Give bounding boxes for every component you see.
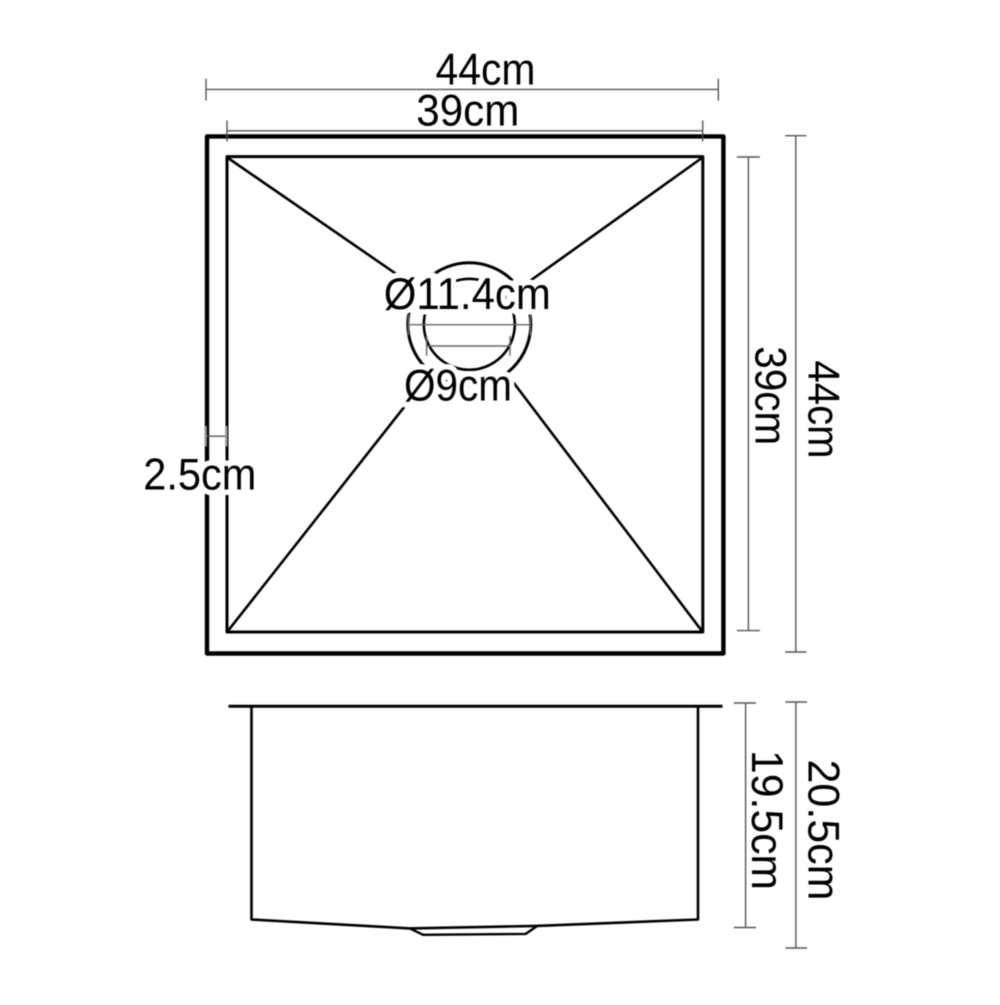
svg-text:20.5cm: 20.5cm	[799, 760, 848, 901]
svg-text:44cm: 44cm	[798, 361, 847, 459]
svg-text:39cm: 39cm	[745, 346, 794, 445]
svg-text:Ø11.4cm: Ø11.4cm	[384, 270, 551, 319]
svg-text:2.5cm: 2.5cm	[143, 451, 256, 500]
svg-text:Ø9cm: Ø9cm	[404, 362, 512, 411]
svg-text:19.5cm: 19.5cm	[742, 750, 791, 890]
svg-text:39cm: 39cm	[416, 87, 519, 136]
